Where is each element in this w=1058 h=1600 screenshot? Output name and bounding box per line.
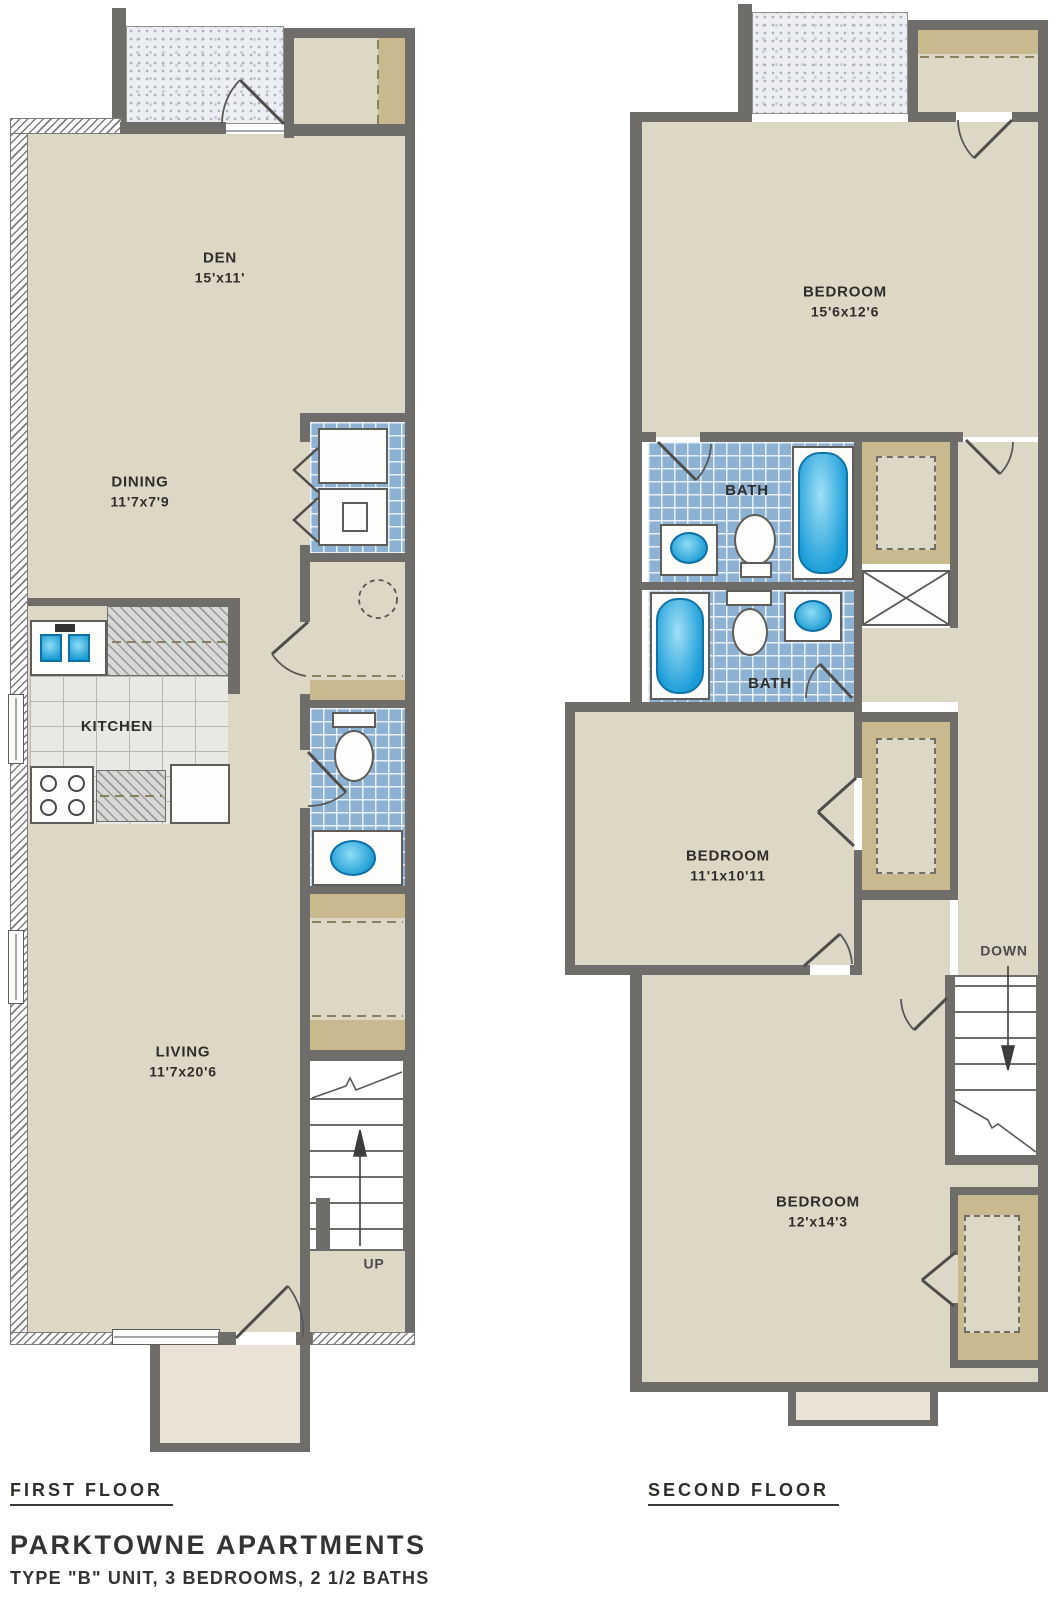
bedroom-wall [850, 965, 862, 975]
kitchen-counter [107, 606, 229, 676]
bedroom-wall [854, 702, 862, 778]
patio-stipple [126, 26, 284, 124]
stoop-wall [150, 1443, 310, 1452]
room-name: DINING [110, 472, 169, 492]
closet-wall [300, 1050, 415, 1059]
room-name: BEDROOM [803, 282, 887, 302]
closet-wall [284, 28, 415, 38]
interior-wall [854, 432, 862, 702]
closet-shelf-outline [876, 456, 936, 550]
bathtub [656, 598, 704, 694]
exterior-wall-top [120, 122, 226, 134]
laundry-wall [300, 413, 415, 422]
exterior-wall-right [1038, 20, 1048, 1392]
stove-burner [68, 775, 85, 792]
living-window [112, 1329, 220, 1345]
bathroom-sink [794, 600, 832, 632]
exterior-wall-top-hatched [10, 118, 122, 134]
hall-floor [958, 442, 1038, 975]
room-name: LIVING [149, 1042, 217, 1062]
refrigerator [170, 764, 230, 824]
kitchen-sink-basin [68, 634, 90, 662]
exterior-wall-left [630, 112, 642, 710]
coat-closet-shelf [310, 894, 405, 918]
closet-wall [908, 112, 956, 122]
closet-wall [908, 20, 1048, 30]
floor-plan-sheet: DEN 15'x11' DINING 11'7x7'9 KITCHEN LIVI… [0, 0, 1058, 1600]
page-subtitle: TYPE "B" UNIT, 3 BEDROOMS, 2 1/2 BATHS [10, 1568, 429, 1589]
dryer-door [342, 502, 368, 532]
coat-closet-shelf [310, 1020, 405, 1050]
bedroom-top-floor [642, 122, 1038, 437]
den-closet-shelf [378, 38, 405, 130]
toilet-pedestal [740, 562, 772, 578]
bedroom-wall [854, 850, 862, 965]
toilet-tank [726, 590, 772, 606]
toilet [334, 730, 374, 782]
bathroom-sink [330, 840, 376, 876]
bath-wall [700, 432, 963, 442]
stair-wall [945, 975, 953, 1165]
stoop-wall [300, 1345, 310, 1450]
stove [30, 766, 94, 824]
stove-burner [68, 799, 85, 816]
closet-shelf-outline [964, 1215, 1020, 1333]
exterior-wall-stub [112, 8, 126, 126]
stoop [796, 1392, 930, 1420]
closet-wall [1012, 112, 1038, 122]
up-label: UP [363, 1255, 384, 1274]
bath-wall [300, 700, 415, 708]
bathroom-sink [670, 532, 708, 564]
stair-guard-wall [316, 1198, 330, 1250]
bath-upper-label: BATH [725, 481, 769, 501]
closet-wall [284, 28, 294, 138]
bath-wall [642, 432, 656, 442]
kitchen-faucet [55, 624, 75, 632]
page-title: PARKTOWNE APARTMENTS [10, 1530, 427, 1561]
closet-wall [862, 890, 958, 900]
room-dims: 15'6x12'6 [803, 303, 887, 322]
closet-shelf-outline [876, 738, 936, 874]
stoop-wall [150, 1345, 160, 1450]
exterior-wall-bottom-hatched [312, 1332, 415, 1345]
room-dims: 15'x11' [195, 269, 245, 288]
hall-floor [862, 628, 1038, 702]
exterior-wall-bottom-hatched [10, 1332, 114, 1345]
room-name: BEDROOM [776, 1192, 860, 1212]
room-dims: 11'1x10'11 [686, 867, 770, 886]
hall-closet-shelf [310, 680, 405, 700]
room-name: BEDROOM [686, 846, 770, 866]
exterior-wall-stub [738, 4, 752, 116]
living-label: LIVING 11'7x20'6 [149, 1042, 217, 1081]
bedroom-top-label: BEDROOM 15'6x12'6 [803, 282, 887, 321]
room-dims: 12'x14'3 [776, 1213, 860, 1232]
interior-wall [950, 432, 958, 628]
patio-stipple [752, 12, 908, 114]
bedroom-middle-label: BEDROOM 11'1x10'11 [686, 846, 770, 885]
bath-wall [300, 886, 415, 894]
closet-wall [950, 712, 958, 900]
closet-wall [950, 1187, 958, 1255]
bedroom-bottom-label: BEDROOM 12'x14'3 [776, 1192, 860, 1231]
bedroom-wall [565, 702, 854, 712]
stoop-wall [788, 1392, 796, 1422]
kitchen-counter [96, 770, 166, 822]
living-window [8, 930, 24, 1004]
room-dims: 11'7x20'6 [149, 1063, 217, 1082]
stoop-wall [930, 1392, 938, 1422]
den-label: DEN 15'x11' [195, 248, 245, 287]
kitchen-wall [28, 598, 230, 606]
toilet [732, 608, 768, 656]
entry-stoop [160, 1345, 300, 1443]
toilet-tank [332, 712, 376, 728]
laundry-wall [300, 553, 415, 562]
stoop-wall [788, 1420, 938, 1426]
exterior-wall-right [405, 28, 415, 1342]
stair-treads [955, 985, 1036, 1107]
dryer [318, 488, 388, 546]
linen-closet [862, 570, 950, 626]
second-floor-caption: SECOND FLOOR [648, 1480, 839, 1506]
closet-wall [862, 712, 958, 722]
bedroom-wall [565, 702, 575, 975]
closet-wall [950, 1303, 958, 1368]
kitchen-wall-stub [228, 598, 240, 694]
closet-bottom-wall [284, 124, 405, 136]
bath-lower-label: BATH [748, 674, 792, 694]
closet-wall [950, 1187, 1038, 1195]
toilet [734, 514, 776, 566]
door-jamb [218, 1332, 236, 1345]
exterior-wall-left [630, 975, 642, 1382]
kitchen-sink-basin [40, 634, 62, 662]
room-dims: 11'7x7'9 [110, 493, 169, 512]
hall-floor [862, 900, 950, 975]
closet-wall [908, 20, 918, 122]
stair-wall [945, 1157, 1038, 1165]
exterior-wall-bottom [630, 1382, 1048, 1392]
closet-wall [950, 1360, 1038, 1368]
bedroom-wall [565, 965, 810, 975]
room-name: DEN [195, 248, 245, 268]
first-floor-caption: FIRST FLOOR [10, 1480, 173, 1506]
stove-burner [40, 799, 57, 816]
stove-burner [40, 775, 57, 792]
bath-divider-wall [642, 582, 854, 590]
dining-label: DINING 11'7x7'9 [110, 472, 169, 511]
kitchen-window [8, 694, 24, 764]
kitchen-label: KITCHEN [81, 717, 153, 737]
washer [318, 428, 388, 484]
bathtub [798, 452, 848, 574]
bedroom-middle-floor [575, 712, 854, 965]
bedroom-closet-shelf [918, 30, 1038, 54]
down-label: DOWN [980, 942, 1028, 961]
